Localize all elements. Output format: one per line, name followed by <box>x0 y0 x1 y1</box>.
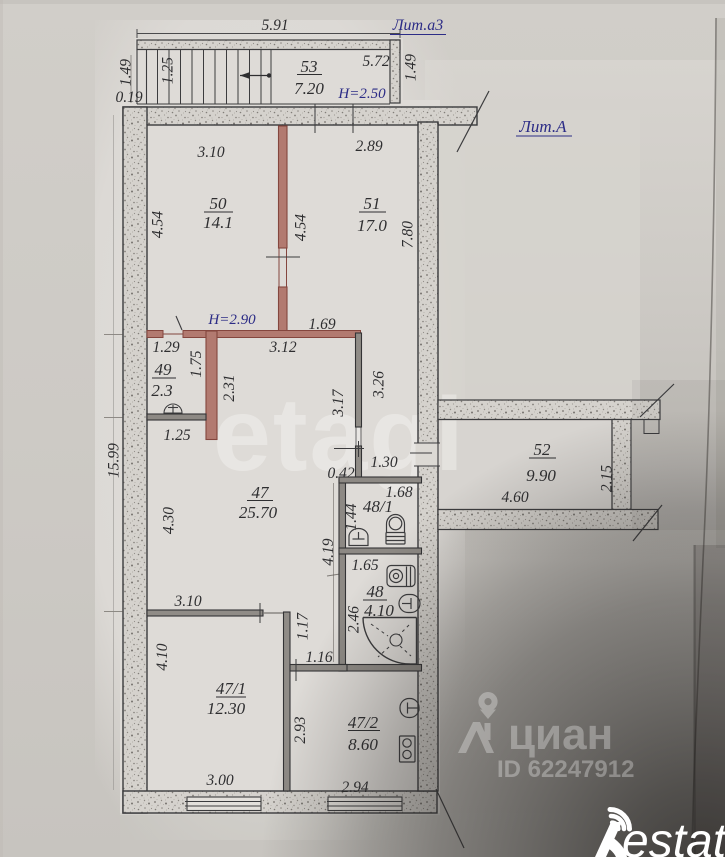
svg-text:циан: циан <box>508 710 613 759</box>
svg-text:ID 62247912: ID 62247912 <box>497 756 634 783</box>
svg-text:estate: estate <box>622 815 725 857</box>
